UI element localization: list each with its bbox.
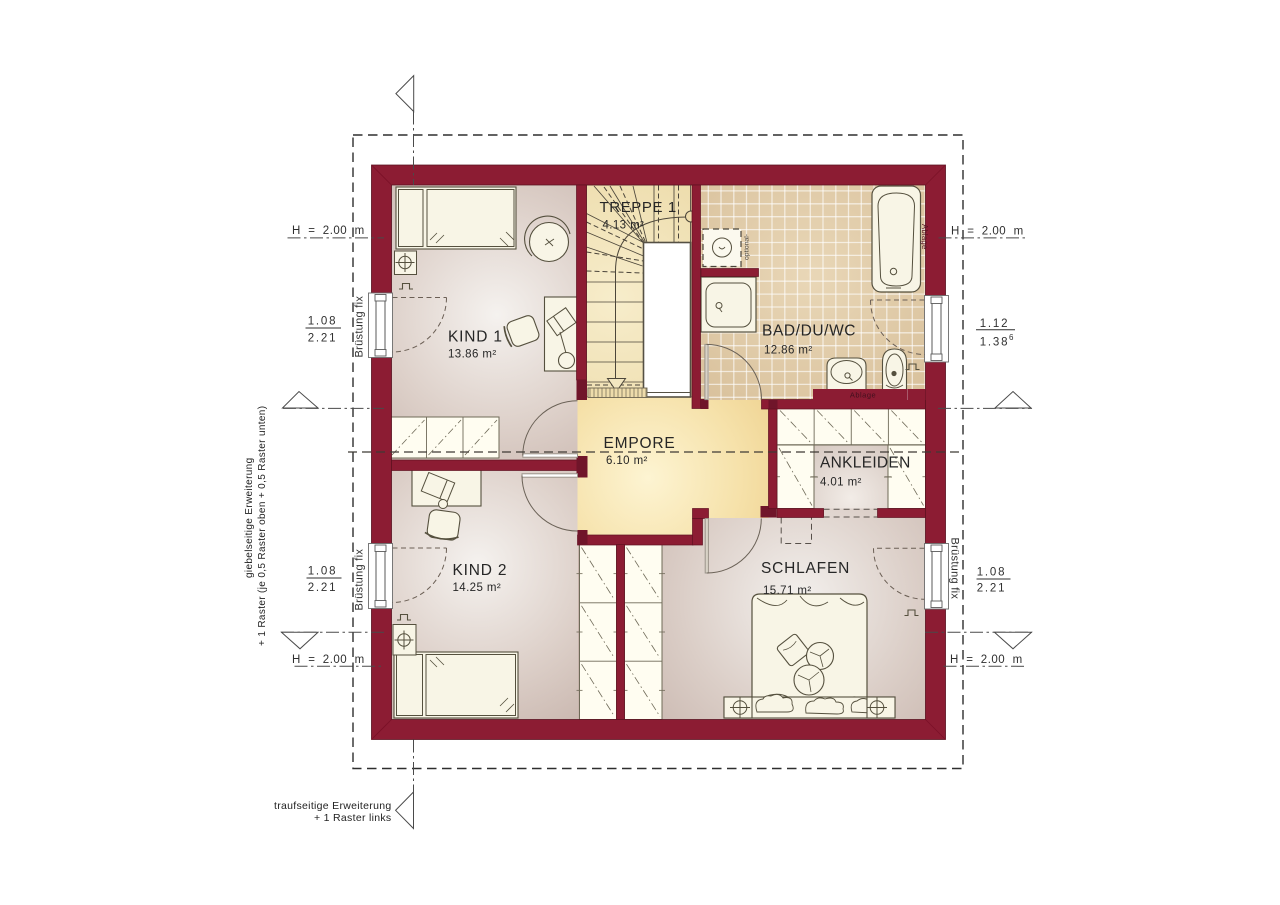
svg-text:Ablage: Ablage — [850, 390, 876, 399]
svg-text:optional-: optional- — [744, 234, 751, 260]
svg-text:2.21: 2.21 — [308, 333, 338, 345]
svg-text:2.21: 2.21 — [977, 583, 1007, 595]
svg-text:6: 6 — [1009, 333, 1014, 342]
svg-text:+ 1 Raster (je 0,5 Raster oben: + 1 Raster (je 0,5 Raster oben + 0,5 Ras… — [257, 406, 268, 646]
svg-text:1.08: 1.08 — [308, 316, 338, 328]
svg-text:SCHLAFEN: SCHLAFEN — [761, 560, 850, 577]
svg-text:giebelseitige Erweiterung: giebelseitige Erweiterung — [244, 458, 255, 578]
svg-text:Ablage: Ablage — [920, 224, 929, 249]
svg-text:H = 2.00 m: H = 2.00 m — [950, 654, 1023, 666]
svg-text:15.71 m²: 15.71 m² — [763, 585, 812, 597]
svg-text:KIND 2: KIND 2 — [453, 562, 508, 579]
svg-text:KIND 1: KIND 1 — [448, 329, 503, 346]
svg-text:4.13 m²: 4.13 m² — [603, 220, 645, 232]
svg-text:Brüstung fix: Brüstung fix — [354, 549, 366, 611]
svg-text:ANKLEIDEN: ANKLEIDEN — [820, 455, 911, 472]
svg-text:EMPORE: EMPORE — [604, 435, 676, 452]
svg-text:1.08: 1.08 — [308, 566, 338, 578]
svg-text:6.10 m²: 6.10 m² — [606, 455, 648, 467]
svg-text:13.86 m²: 13.86 m² — [448, 349, 497, 361]
svg-text:1.08: 1.08 — [977, 567, 1007, 579]
svg-text:traufseitige Erweiterung: traufseitige Erweiterung — [274, 800, 392, 812]
svg-text:TREPPE 1: TREPPE 1 — [600, 199, 677, 216]
svg-text:Brüstung fix: Brüstung fix — [949, 538, 961, 600]
svg-text:H = 2.00 m: H = 2.00 m — [292, 654, 365, 666]
svg-text:4.01 m²: 4.01 m² — [820, 477, 862, 489]
svg-text:12.86 m²: 12.86 m² — [764, 345, 813, 357]
svg-text:+ 1 Raster links: + 1 Raster links — [314, 812, 391, 824]
svg-text:1.12: 1.12 — [980, 318, 1010, 330]
svg-text:H = 2.00 m: H = 2.00 m — [292, 225, 365, 237]
svg-text:14.25 m²: 14.25 m² — [453, 582, 502, 594]
svg-text:H = 2.00 m: H = 2.00 m — [951, 226, 1024, 238]
svg-text:2.21: 2.21 — [308, 582, 338, 594]
svg-text:BAD/DU/WC: BAD/DU/WC — [762, 323, 856, 340]
svg-text:1.38: 1.38 — [980, 337, 1010, 349]
svg-text:Brüstung fix: Brüstung fix — [354, 296, 366, 358]
